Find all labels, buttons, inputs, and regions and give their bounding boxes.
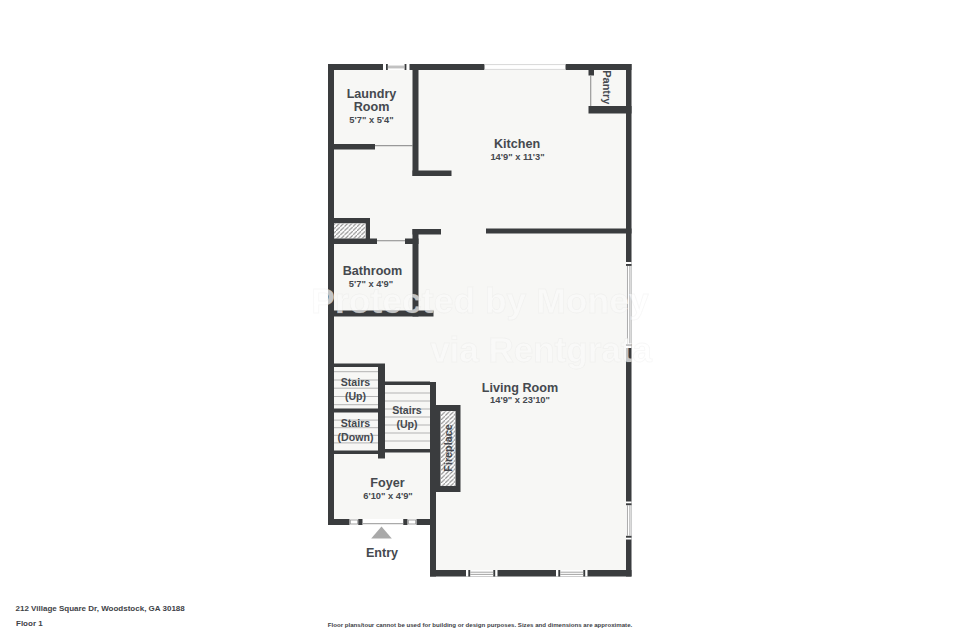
svg-text:Stairs: Stairs	[392, 404, 422, 416]
svg-text:Fireplace: Fireplace	[442, 424, 454, 471]
svg-text:Living Room: Living Room	[482, 381, 558, 395]
svg-text:Laundry: Laundry	[347, 87, 397, 101]
svg-text:Stairs: Stairs	[341, 376, 371, 388]
svg-text:Room: Room	[354, 100, 390, 114]
svg-text:14'9" x 11'3": 14'9" x 11'3"	[490, 152, 544, 162]
svg-text:Floor 1: Floor 1	[16, 619, 43, 628]
svg-text:Foyer: Foyer	[370, 476, 404, 490]
svg-text:Pantry: Pantry	[601, 70, 613, 105]
svg-text:Entry: Entry	[366, 546, 398, 560]
svg-text:5'7" x 5'4": 5'7" x 5'4"	[349, 115, 393, 125]
svg-text:(Up): (Up)	[396, 418, 417, 430]
svg-text:Protected by Money: Protected by Money	[311, 281, 649, 321]
svg-text:Bathroom: Bathroom	[343, 264, 402, 278]
svg-text:(Up): (Up)	[345, 390, 366, 402]
svg-text:14'9" x 23'10": 14'9" x 23'10"	[490, 395, 550, 405]
svg-text:(Down): (Down)	[338, 431, 374, 443]
svg-text:Kitchen: Kitchen	[494, 137, 540, 151]
svg-text:212 Village Square Dr, Woodsto: 212 Village Square Dr, Woodstock, GA 301…	[16, 604, 186, 613]
svg-text:6'10" x 4'9": 6'10" x 4'9"	[363, 491, 412, 501]
svg-text:via Rentgrata: via Rentgrata	[430, 330, 652, 369]
svg-text:Floor plans/tour cannot be use: Floor plans/tour cannot be used for buil…	[328, 621, 633, 628]
svg-text:Stairs: Stairs	[341, 417, 371, 429]
